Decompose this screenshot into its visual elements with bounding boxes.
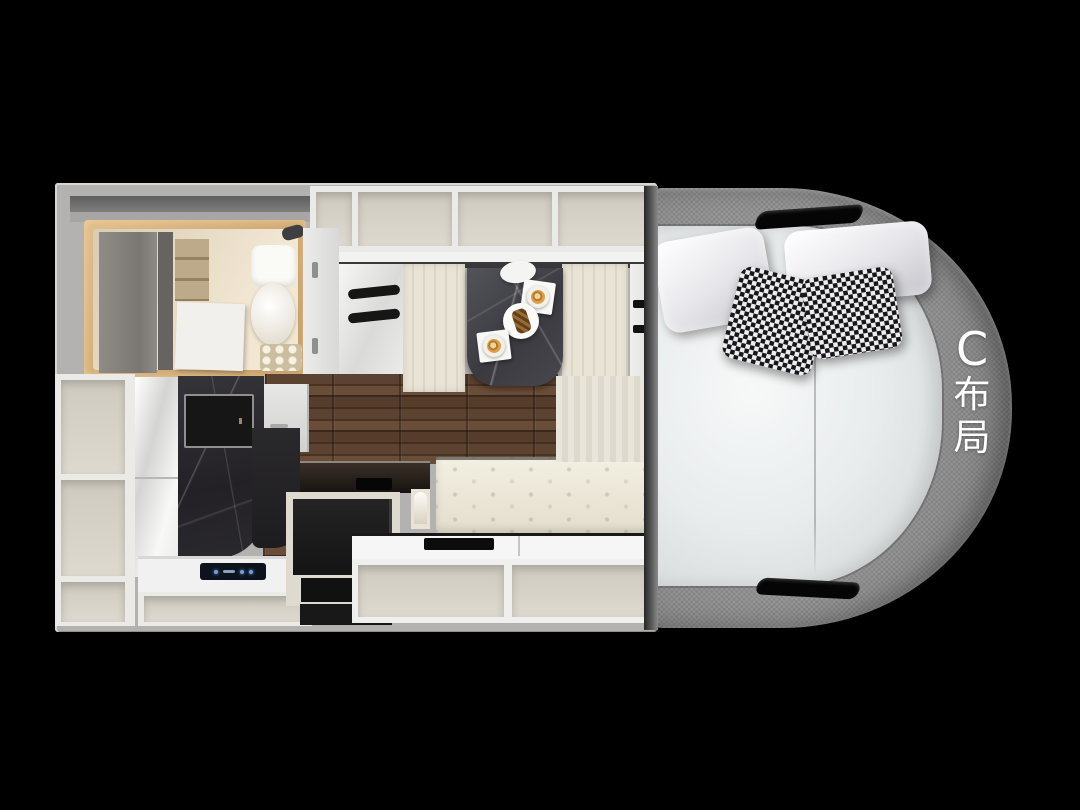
- panel-display: [223, 570, 235, 573]
- pastry: [510, 307, 532, 334]
- rear-shelf-compartment-2: [512, 565, 649, 617]
- label-char-bu: 布: [954, 376, 991, 415]
- island-counter-handle: [356, 478, 392, 490]
- wardrobe-handle-upper: [312, 262, 318, 278]
- bottom-shelf-left: [144, 596, 306, 622]
- left-shelf-compartment-1: [61, 380, 125, 474]
- toilet-bowl: [251, 283, 295, 345]
- shelf-compartment-2: [358, 192, 452, 246]
- panel-indicator-1: [214, 570, 218, 574]
- microwave-indicator: [239, 418, 242, 424]
- label-char-c: C: [956, 326, 988, 372]
- rear-counter: [352, 533, 655, 559]
- pillow-houndstooth-right: [800, 265, 904, 360]
- bathroom-mosaic-tile: [260, 344, 302, 371]
- shower-partition-small: [158, 232, 173, 370]
- label-char-ju: 局: [954, 419, 991, 458]
- microwave-window: [184, 394, 254, 448]
- tall-cabinet-seam: [135, 477, 180, 479]
- latte-art-2: [486, 338, 502, 354]
- dinette-bench-left: [403, 264, 465, 392]
- bathroom-overhead-cabinet: [70, 196, 310, 212]
- shower-partition-large: [99, 232, 157, 373]
- bathroom-door-panel: [175, 302, 245, 371]
- layout-variant-label: C 布 局: [944, 326, 1000, 482]
- left-shelf-compartment-3: [61, 582, 125, 622]
- left-shelf-compartment-2: [61, 480, 125, 576]
- arch-niche-inset: [414, 492, 427, 524]
- dinette-bench-right: [562, 264, 628, 392]
- bathroom-niche-shelf: [175, 239, 209, 301]
- panel-indicator-2: [240, 570, 244, 574]
- arch-niche: [411, 489, 430, 529]
- toilet-tank: [251, 245, 296, 287]
- coffee-cup-bottom: [482, 334, 507, 359]
- wardrobe-handle-lower: [312, 338, 318, 354]
- shelf-compartment-3: [458, 192, 552, 246]
- counter-tray: [424, 538, 494, 550]
- control-panel: [200, 563, 266, 580]
- rear-shelf-compartment-1: [358, 565, 504, 617]
- counter-seam: [518, 536, 520, 556]
- bed-side-wall: [556, 376, 656, 462]
- shelf-compartment-4: [558, 192, 651, 246]
- latte-art: [530, 289, 546, 305]
- motorhome-floorplan-scene: C 布 局: [0, 0, 1080, 810]
- sofa-bench: [436, 457, 650, 533]
- plan-right-wall-edge: [644, 186, 658, 630]
- coffee-napkin-bottom: [476, 329, 511, 363]
- panel-indicator-3: [249, 570, 253, 574]
- shelf-row-lip: [310, 252, 657, 262]
